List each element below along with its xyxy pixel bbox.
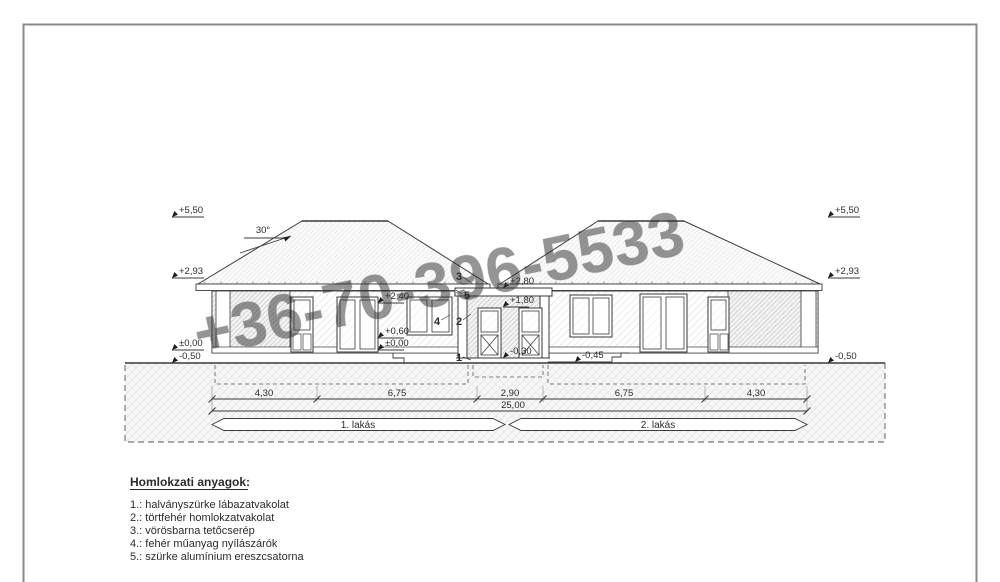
dim-4-30-left: 4,30 bbox=[255, 388, 274, 399]
dim-2-90: 2,90 bbox=[501, 388, 520, 399]
level-left-293-label: +2,93 bbox=[179, 266, 203, 277]
level-right-293-label: +2,93 bbox=[835, 266, 859, 277]
right-porch-post bbox=[801, 291, 816, 353]
marker-2-wall: 2 bbox=[456, 316, 462, 328]
door1-glass bbox=[481, 311, 498, 332]
right-window bbox=[570, 295, 612, 337]
right-door-window-glass bbox=[711, 300, 726, 330]
flat1-label: 1. lakás bbox=[341, 420, 375, 431]
level-right-m050-label: -0,50 bbox=[835, 351, 857, 362]
level-right-293: +2,93 bbox=[828, 266, 860, 278]
elevation-drawing-page: 4,30 6,75 2,90 6,75 4,30 25,00 1. lakás … bbox=[0, 0, 1000, 582]
right-door-window-panel bbox=[710, 334, 718, 350]
roof-angle-label: 30° bbox=[256, 225, 271, 236]
drawing-canvas: 4,30 6,75 2,90 6,75 4,30 25,00 1. lakás … bbox=[0, 0, 1000, 582]
level-right-550-label: +5,50 bbox=[835, 205, 859, 216]
level-right-550: +5,50 bbox=[828, 205, 860, 217]
legend-item-2: 2.: törtfehér homlokzatvakolat bbox=[130, 512, 274, 524]
flat2-label: 2. lakás bbox=[641, 420, 675, 431]
level-porch-m030-label: -0,30 bbox=[510, 346, 532, 357]
door2-glass bbox=[522, 311, 539, 332]
legend: Homlokzati anyagok: 1.: halványszürke lá… bbox=[130, 475, 305, 563]
right-window-leaf bbox=[593, 298, 609, 334]
dim-25-00: 25,00 bbox=[501, 400, 525, 411]
dim-4-30-right: 4,30 bbox=[747, 388, 766, 399]
level-right-m050: -0,50 bbox=[828, 351, 860, 363]
level-left-550-label: +5,50 bbox=[179, 205, 203, 216]
right-french-door bbox=[640, 294, 687, 352]
dim-6-75-right: 6,75 bbox=[615, 388, 634, 399]
right-door-window-panel bbox=[720, 334, 728, 350]
legend-item-5: 5.: szürke alumínium ereszcsatorna bbox=[130, 551, 305, 563]
right-door-window bbox=[708, 297, 729, 352]
entrance-door-flat1 bbox=[478, 308, 501, 358]
level-terrace-m045-label: -0,45 bbox=[582, 350, 604, 361]
legend-item-1: 1.: halványszürke lábazatvakolat bbox=[130, 499, 289, 511]
right-window-leaf bbox=[573, 298, 589, 334]
legend-item-4: 4.: fehér műanyag nyílászárók bbox=[130, 538, 278, 550]
dim-6-75-left: 6,75 bbox=[388, 388, 407, 399]
legend-item-3: 3.: vörösbarna tetőcserép bbox=[130, 525, 255, 537]
legend-title: Homlokzati anyagok: bbox=[130, 475, 250, 489]
right-steps bbox=[612, 353, 629, 362]
level-left-293: +2,93 bbox=[172, 266, 204, 278]
level-left-550: +5,50 bbox=[172, 205, 204, 217]
marker-1-plinth: 1 bbox=[456, 352, 462, 364]
level-window-000-label: ±0,00 bbox=[385, 338, 409, 349]
left-steps bbox=[393, 353, 421, 363]
right-french-door-leaf bbox=[643, 297, 661, 349]
right-french-door-leaf bbox=[666, 297, 684, 349]
